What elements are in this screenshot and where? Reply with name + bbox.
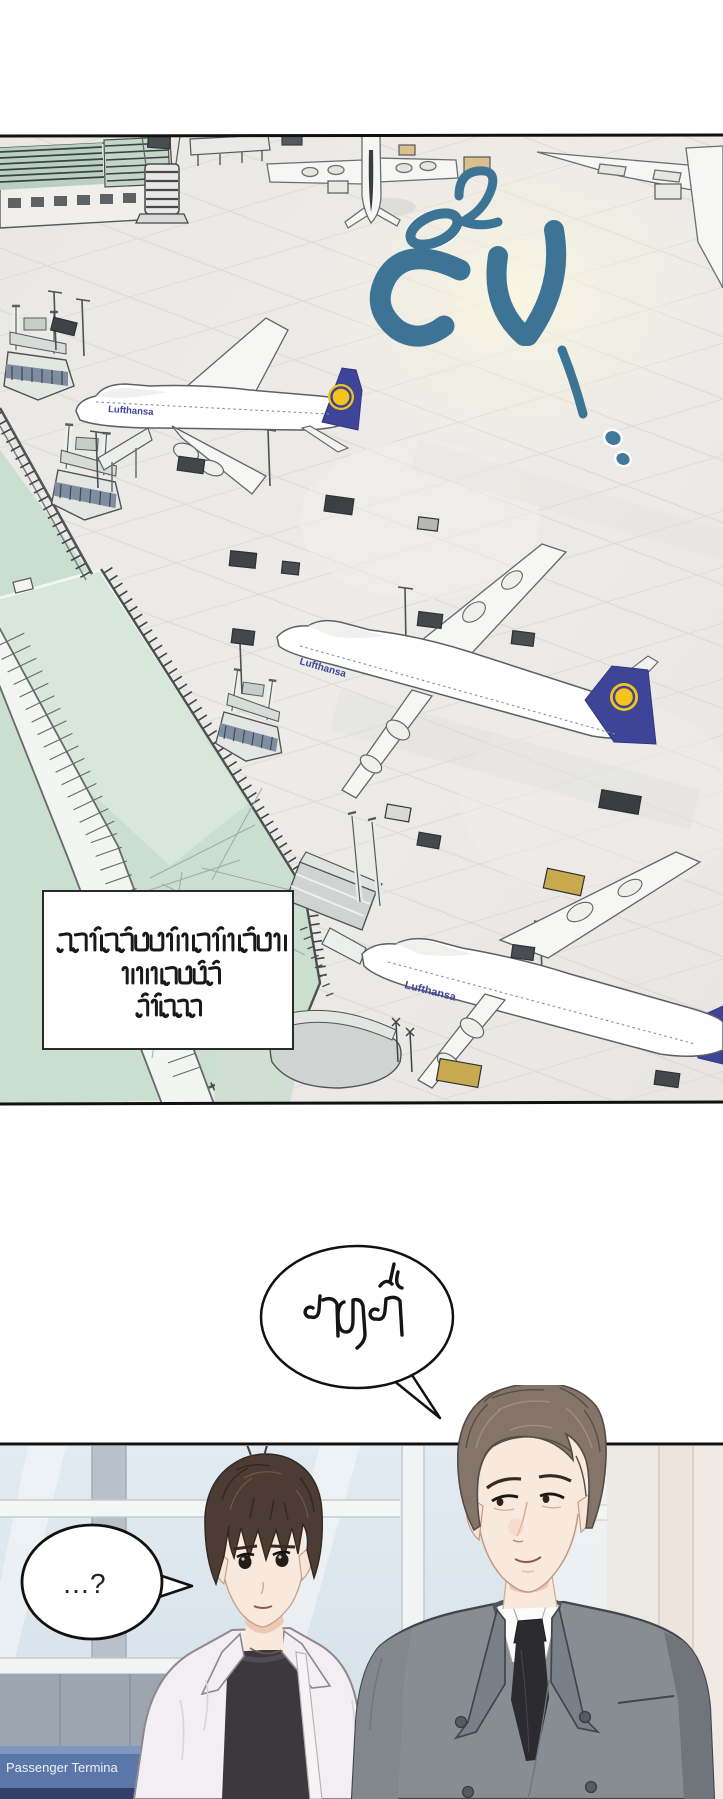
svg-text:Passenger Termina: Passenger Termina [6,1760,119,1775]
svg-text:…?: …? [62,1568,106,1599]
